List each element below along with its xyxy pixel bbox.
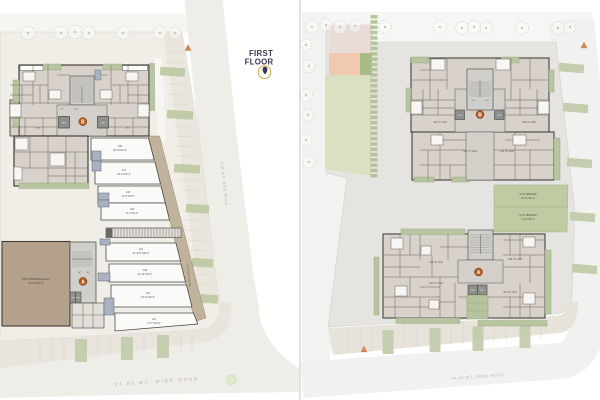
svg-text:41'-8"X35'-9": 41'-8"X35'-9" (521, 218, 535, 221)
svg-text:A: A (81, 279, 85, 285)
svg-text:106: 106 (126, 191, 131, 194)
svg-text:32'-10.5"X20'-0": 32'-10.5"X20'-0" (132, 252, 149, 255)
svg-text:102: 102 (146, 292, 151, 295)
svg-text:203 TO 1403: 203 TO 1403 (429, 283, 443, 285)
svg-text:101: 101 (152, 318, 157, 321)
svg-text:30'-0"X12'-0": 30'-0"X12'-0" (113, 149, 127, 152)
svg-text:GYM TERRACE: GYM TERRACE (519, 193, 537, 196)
svg-text:39'-2"X16'-9": 39'-2"X16'-9" (521, 197, 535, 200)
svg-text:30'-6"X9'-6": 30'-6"X9'-6" (122, 195, 135, 198)
svg-text:B: B (478, 113, 482, 119)
svg-text:46'-2"X40'-9": 46'-2"X40'-9" (29, 281, 44, 285)
svg-text:16'-6"X16'-9": 16'-6"X16'-9" (141, 296, 155, 299)
svg-text:DN: DN (74, 109, 78, 111)
svg-text:202 TO 1402: 202 TO 1402 (503, 292, 517, 294)
svg-text:205 TO 1405: 205 TO 1405 (522, 122, 536, 124)
svg-text:DN: DN (485, 100, 489, 102)
svg-text:FLOOR: FLOOR (245, 57, 274, 66)
svg-text:202 TO 1402: 202 TO 1402 (500, 151, 514, 153)
svg-text:205 TO 1405: 205 TO 1405 (508, 259, 522, 261)
svg-text:108: 108 (118, 145, 123, 148)
svg-text:204 TO 1404: 204 TO 1404 (429, 262, 443, 264)
svg-text:31'-10"X19'-6": 31'-10"X19'-6" (137, 273, 152, 276)
svg-text:MULTIPURPOSE HALL: MULTIPURPOSE HALL (22, 277, 50, 281)
svg-text:104: 104 (139, 248, 144, 251)
svg-text:203 TO 1403: 203 TO 1403 (463, 151, 477, 153)
svg-text:30'-4"X12'-0": 30'-4"X12'-0" (117, 173, 131, 176)
svg-text:GYM TERRACE: GYM TERRACE (519, 214, 537, 217)
svg-text:14'-7"X13'-0": 14'-7"X13'-0" (147, 322, 161, 325)
svg-text:B: B (81, 120, 85, 126)
svg-text:A: A (477, 270, 481, 276)
svg-text:UP: UP (471, 100, 475, 102)
svg-text:107: 107 (122, 169, 127, 172)
svg-text:UP: UP (60, 109, 64, 111)
svg-text:204 TO 1404: 204 TO 1404 (433, 122, 447, 124)
svg-text:105: 105 (130, 208, 135, 211)
svg-text:21'-9"X9'-6": 21'-9"X9'-6" (126, 212, 139, 215)
svg-text:103: 103 (143, 269, 148, 272)
